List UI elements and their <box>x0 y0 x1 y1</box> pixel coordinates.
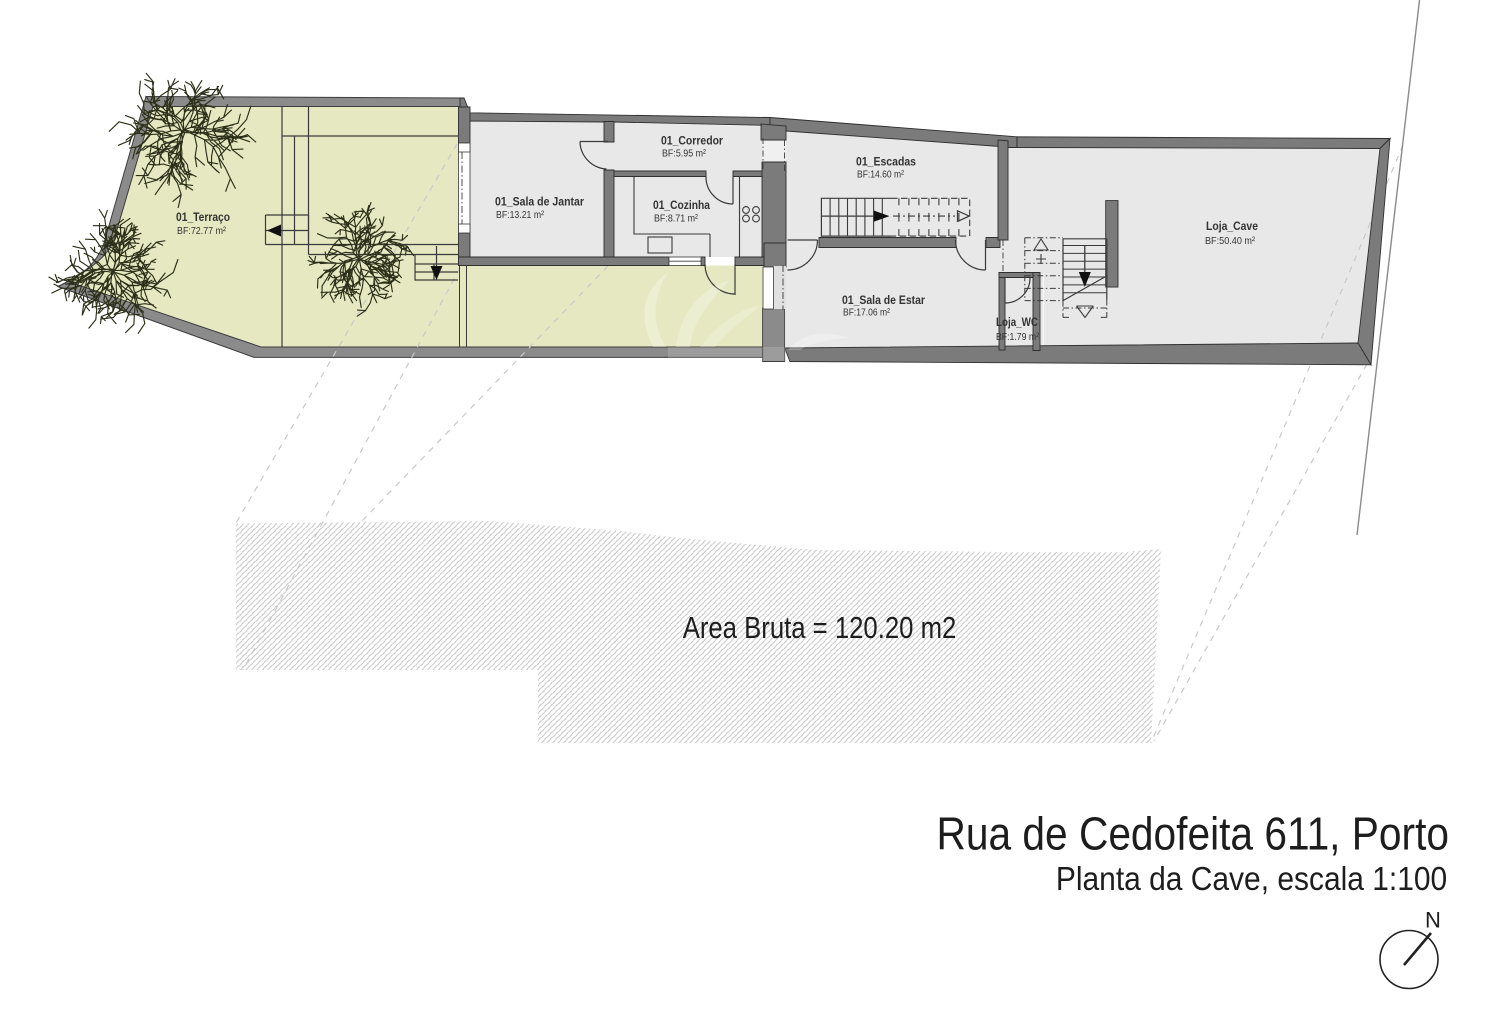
svg-text:BF:8.71 m²: BF:8.71 m² <box>654 213 698 225</box>
svg-text:BF:1.79 m²: BF:1.79 m² <box>996 331 1039 343</box>
svg-text:Loja_Cave: Loja_Cave <box>1206 219 1258 233</box>
svg-text:BF:5.95 m²: BF:5.95 m² <box>662 148 706 160</box>
svg-text:BF:50.40 m²: BF:50.40 m² <box>1205 235 1255 247</box>
svg-text:BF:14.60 m²: BF:14.60 m² <box>857 169 904 181</box>
svg-text:N: N <box>1425 908 1441 933</box>
svg-text:Rua de Cedofeita 611, Porto: Rua de Cedofeita 611, Porto <box>937 808 1450 860</box>
svg-text:01_Corredor: 01_Corredor <box>661 134 723 148</box>
svg-text:01_Terraço: 01_Terraço <box>176 210 230 224</box>
svg-text:BF:17.06 m²: BF:17.06 m² <box>843 307 890 319</box>
svg-text:01_Sala de Estar: 01_Sala de Estar <box>842 293 925 307</box>
svg-text:01_Escadas: 01_Escadas <box>856 155 916 169</box>
svg-text:Loja_WC: Loja_WC <box>996 315 1038 329</box>
svg-text:BF:72.77 m²: BF:72.77 m² <box>177 225 226 237</box>
svg-text:01_Sala de Jantar: 01_Sala de Jantar <box>495 195 584 209</box>
svg-text:Planta da Cave, escala 1:100: Planta da Cave, escala 1:100 <box>1056 860 1447 897</box>
svg-text:01_Cozinha: 01_Cozinha <box>653 198 710 212</box>
svg-text:BF:13.21 m²: BF:13.21 m² <box>496 209 544 221</box>
svg-text:Area Bruta = 120.20 m2: Area Bruta = 120.20 m2 <box>683 610 957 645</box>
